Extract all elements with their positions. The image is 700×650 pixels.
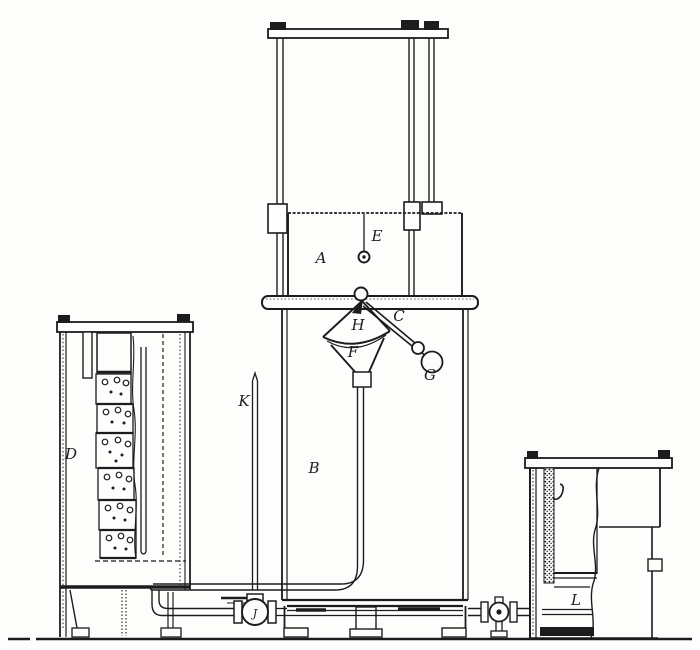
rim-flange xyxy=(262,296,478,309)
hatched-down-pipe xyxy=(544,468,554,583)
plate xyxy=(98,468,134,500)
tank-a: A xyxy=(288,213,462,296)
pump-stem xyxy=(496,621,502,632)
pump-center-dot xyxy=(496,609,501,614)
float-e: E xyxy=(359,214,383,263)
pump-valve xyxy=(481,597,517,637)
rod-k-tip xyxy=(253,373,258,381)
perforated-plates xyxy=(96,374,136,558)
gantry-right-rod xyxy=(429,38,434,202)
tank-l-tab xyxy=(648,559,662,571)
label-d: D xyxy=(64,445,77,463)
valve-flange xyxy=(268,601,276,623)
tank-d-knob xyxy=(177,314,190,322)
guide-collar xyxy=(268,204,287,233)
label-f: F xyxy=(347,343,359,361)
plate xyxy=(100,530,136,558)
tank-d-rim xyxy=(57,322,193,332)
tank-b-pedestal-foot xyxy=(350,629,382,637)
plate xyxy=(96,374,131,404)
diagram-canvas: A E B xyxy=(0,0,700,650)
tank-d-center-support xyxy=(122,590,126,636)
tank-b-foot xyxy=(284,628,308,637)
gantry-left-leg xyxy=(277,38,283,297)
plate xyxy=(96,433,133,468)
pump-foot xyxy=(491,631,507,637)
rim-bar xyxy=(262,296,478,309)
inner-panel-lines xyxy=(554,578,597,587)
pipe-into-l xyxy=(542,610,592,615)
pipe-support-foot xyxy=(161,628,181,637)
gantry-mid-rod xyxy=(409,38,414,297)
label-k: K xyxy=(237,392,250,410)
valve-j: J xyxy=(221,594,276,625)
label-c: C xyxy=(393,307,405,325)
lower-pipe-left xyxy=(152,590,234,616)
tank-a-walls xyxy=(288,213,462,296)
gantry-top-bar xyxy=(268,29,448,38)
pump-flange xyxy=(481,602,488,622)
tank-d-knob xyxy=(58,315,70,323)
tank-l-knob xyxy=(658,450,670,459)
plate xyxy=(97,404,133,433)
tank-d-top-box xyxy=(97,333,131,374)
inner-tube xyxy=(141,347,146,554)
guide-collar xyxy=(404,202,420,230)
label-g: G xyxy=(424,366,436,384)
funnel-stem xyxy=(353,372,371,387)
hook-mark xyxy=(553,484,563,499)
pipe-support-leg xyxy=(168,592,173,628)
tank-b-foot xyxy=(442,628,466,637)
tank-l-step xyxy=(599,527,660,638)
gauge-rod-k: K xyxy=(237,373,257,590)
tank-b-bottom xyxy=(282,600,468,606)
label-l: L xyxy=(570,591,581,609)
filter-tank-d: D xyxy=(57,314,193,637)
label-b: B xyxy=(307,459,319,477)
tank-l-knob xyxy=(527,451,538,459)
patent-apparatus-diagram: A E B xyxy=(0,0,700,650)
label-j: J xyxy=(251,607,258,620)
gantry-knob xyxy=(424,21,439,30)
gantry-knob xyxy=(401,20,419,30)
gantry-knob xyxy=(270,22,286,30)
float-e-dot xyxy=(362,255,365,258)
down-pipe-line xyxy=(150,387,358,590)
tank-l-rim xyxy=(525,458,672,468)
lever-joint xyxy=(412,342,424,354)
pump-flange xyxy=(510,602,517,622)
rod-k-lines xyxy=(253,381,258,590)
valve-flange xyxy=(234,601,242,623)
label-h: H xyxy=(350,316,365,334)
label-a: A xyxy=(314,249,327,267)
label-e: E xyxy=(371,227,383,245)
broken-edge-wavy-line xyxy=(591,468,599,638)
tank-d-bracket xyxy=(83,332,92,378)
tank-d-foot xyxy=(72,628,89,637)
tank-l-bottom-band xyxy=(540,627,594,636)
tank-d-leg xyxy=(70,590,77,628)
pivot-knob xyxy=(355,288,368,301)
